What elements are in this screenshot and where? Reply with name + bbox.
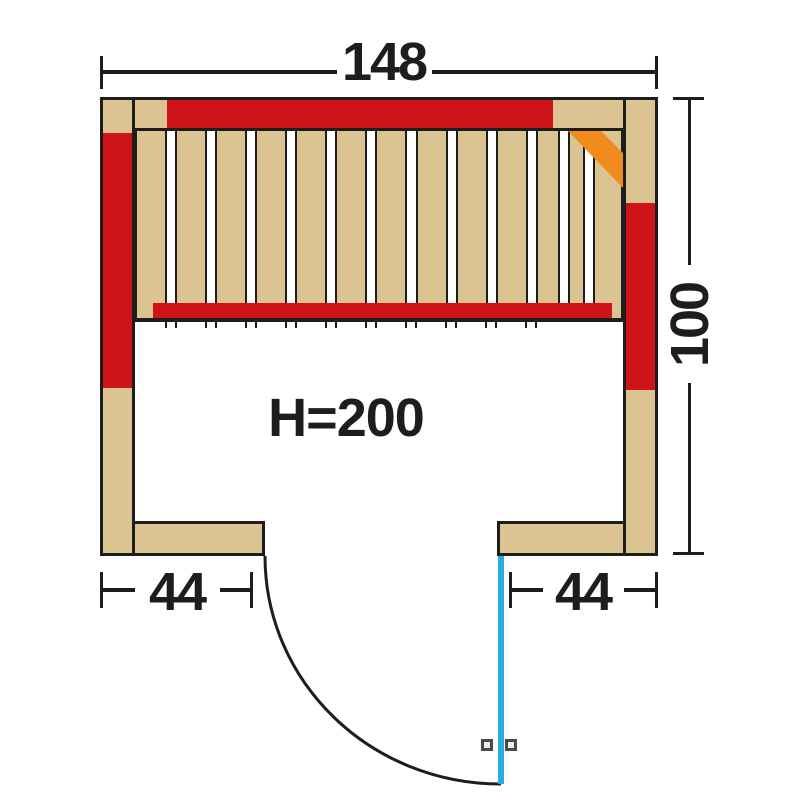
door-panel-open [498,556,504,784]
door-swing-arc [0,0,800,800]
sauna-floor-plan: 148 100 H=200 44 44 [0,0,800,800]
door-handle-outer [505,739,517,751]
door-handle-inner [481,739,493,751]
heater-panel-bench-front [153,303,612,318]
bench-front-edge [132,318,626,322]
corner-accent [135,131,623,318]
bench-slat-ticks [165,322,545,328]
